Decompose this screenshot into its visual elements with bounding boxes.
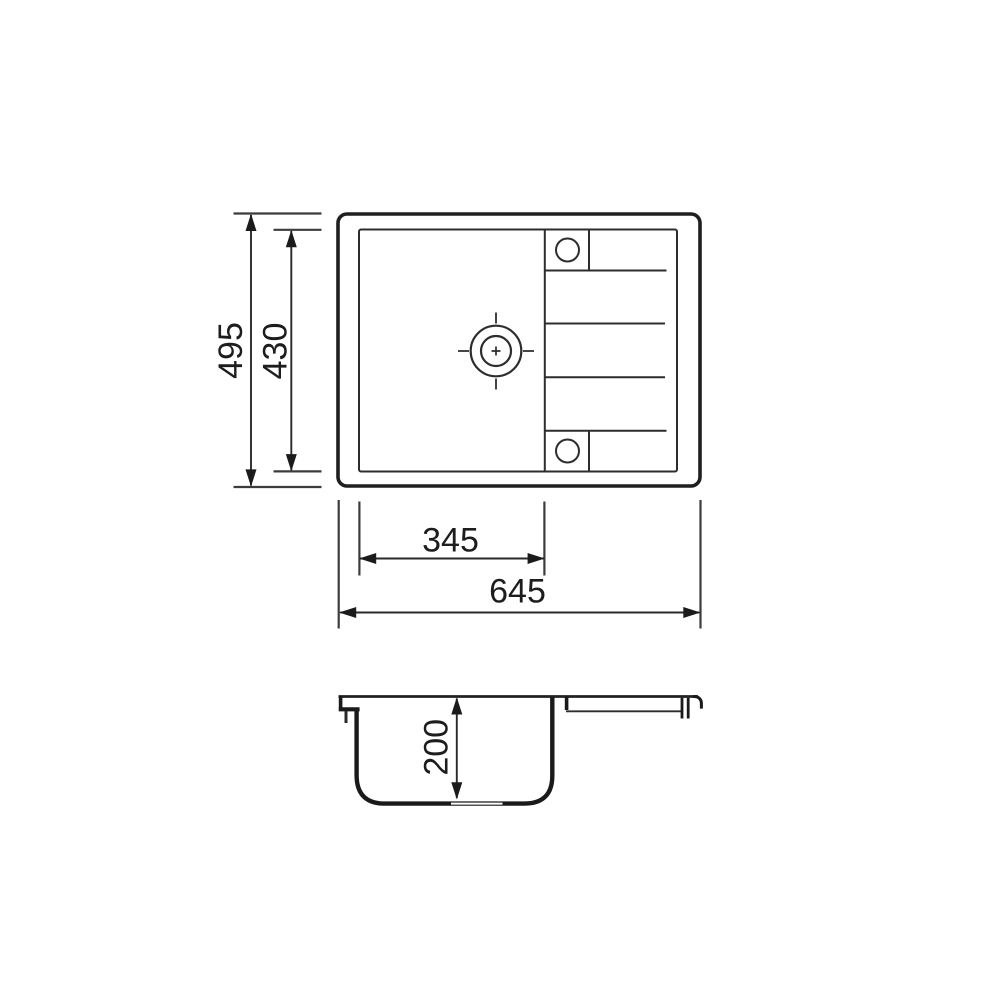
svg-text:345: 345 [422,522,479,560]
svg-text:200: 200 [418,719,456,776]
svg-text:645: 645 [489,573,546,611]
svg-text:430: 430 [256,323,294,380]
svg-text:495: 495 [212,322,250,379]
